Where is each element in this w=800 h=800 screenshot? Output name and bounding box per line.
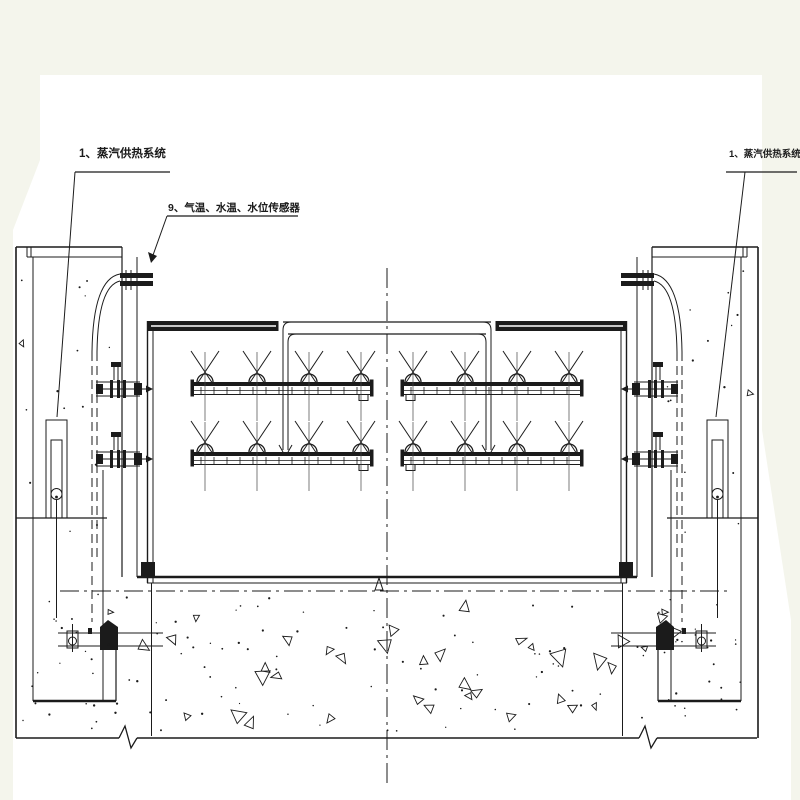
- label-sensors: 9、气温、水温、水位传感器: [168, 201, 300, 214]
- label-steam-system-left: 1、蒸汽供热系统: [79, 146, 166, 160]
- drawing-canvas: 1、蒸汽供热系统 1、蒸汽供热系统 9、气温、水温、水位传感器: [0, 0, 800, 800]
- paper-sheet: [13, 75, 791, 800]
- engineering-section-drawing: 1、蒸汽供热系统 1、蒸汽供热系统 9、气温、水温、水位传感器: [0, 0, 800, 800]
- label-steam-system-right: 1、蒸汽供热系统: [729, 148, 800, 160]
